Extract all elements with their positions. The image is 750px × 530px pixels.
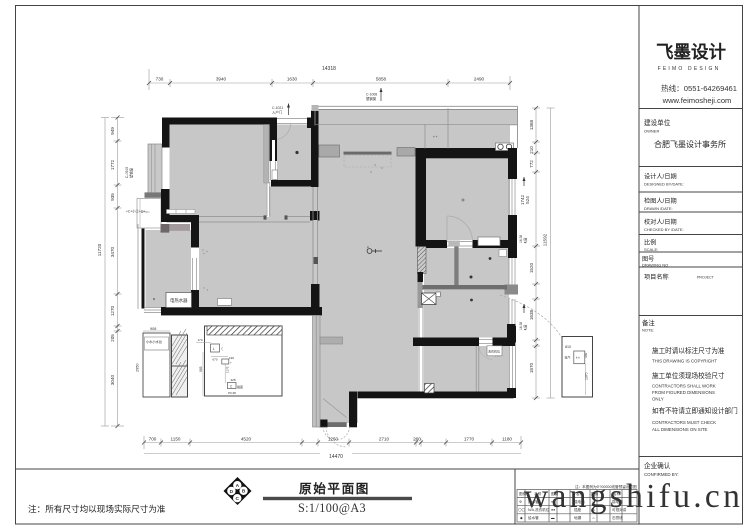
svg-text:Φ: Φ	[519, 500, 522, 504]
svg-text:注：所有尺寸均以现场实际尺寸为准: 注：所有尺寸均以现场实际尺寸为准	[28, 503, 166, 514]
svg-text:施工时请以标注尺寸为准: 施工时请以标注尺寸为准	[652, 346, 725, 355]
svg-text:730: 730	[156, 77, 164, 82]
svg-text:∧∧: ∧∧	[576, 356, 580, 360]
svg-text:OWNER: OWNER	[644, 129, 659, 134]
svg-text:入户门: 入户门	[272, 110, 283, 115]
svg-text:wangshifu.cn: wangshifu.cn	[524, 478, 743, 515]
svg-text:DRAWN /DATE:: DRAWN /DATE:	[644, 206, 673, 211]
svg-text:524: 524	[525, 196, 530, 204]
svg-text:P0.38: P0.38	[228, 391, 236, 395]
svg-text:CONTRACTORS SHALL WORK: CONTRACTORS SHALL WORK	[652, 384, 716, 389]
svg-text:热线：0551-64269461: 热线：0551-64269461	[661, 83, 737, 93]
svg-text:1370: 1370	[585, 372, 589, 380]
svg-text:CONTRACTORS MUST CHECK: CONTRACTORS MUST CHECK	[652, 420, 716, 425]
svg-text:1270: 1270	[110, 305, 115, 316]
svg-text:700: 700	[149, 437, 157, 442]
svg-text:670: 670	[213, 358, 218, 362]
svg-text:+: +	[230, 361, 232, 365]
svg-text:NOTE:: NOTE:	[642, 328, 654, 333]
svg-text:200: 200	[413, 437, 421, 442]
svg-text:C-1008: C-1008	[366, 93, 377, 97]
svg-text:DESIGNED BY/DATE:: DESIGNED BY/DATE:	[644, 182, 684, 187]
svg-text:205: 205	[110, 334, 115, 342]
svg-text:1870: 1870	[529, 362, 534, 373]
svg-text:949: 949	[110, 127, 115, 135]
svg-text:FROM FIGURED DIMENSIONS: FROM FIGURED DIMENSIONS	[652, 390, 715, 395]
svg-text:935: 935	[110, 193, 115, 201]
svg-text:S:1/100@A3: S:1/100@A3	[298, 501, 366, 515]
svg-text:+C+小②+C+: +C+小②+C+	[126, 209, 145, 214]
svg-text:原始平面图: 原始平面图	[299, 481, 370, 496]
svg-text:SCALE:: SCALE:	[644, 247, 658, 252]
svg-text:1630: 1630	[287, 77, 298, 82]
svg-text:2950: 2950	[136, 364, 140, 372]
svg-text:16.38: 16.38	[519, 235, 523, 243]
svg-text:电热水器: 电热水器	[170, 297, 188, 304]
svg-text:1180: 1180	[502, 437, 512, 442]
svg-text:450: 450	[584, 352, 588, 358]
svg-text:14318: 14318	[322, 66, 336, 72]
svg-text:1368: 1368	[529, 119, 534, 130]
svg-text:www.feimosheji.com: www.feimosheji.com	[662, 96, 732, 105]
svg-text:插座: 插座	[237, 384, 243, 389]
svg-text:210: 210	[529, 146, 534, 154]
svg-text:2710: 2710	[379, 437, 390, 442]
svg-text:1770: 1770	[464, 437, 475, 442]
svg-text:+ +: + +	[433, 135, 438, 139]
svg-text:石膏线: 石膏线	[612, 515, 623, 520]
svg-text:16.38: 16.38	[519, 322, 523, 330]
svg-text:电气: 电气	[565, 355, 571, 360]
svg-text:5858: 5858	[376, 77, 387, 82]
svg-text:11720: 11720	[97, 243, 102, 256]
svg-text:THIS DRAWING IS COPYRIGHT: THIS DRAWING IS COPYRIGHT	[652, 359, 717, 364]
svg-text:170: 170	[198, 338, 203, 342]
svg-text:PROJECT: PROJECT	[697, 276, 715, 280]
svg-text:1250: 1250	[328, 437, 339, 442]
svg-text:℄窗: ℄窗	[523, 237, 528, 244]
svg-text:4520: 4520	[241, 437, 252, 442]
svg-text:1520: 1520	[529, 262, 534, 273]
svg-text:比例: 比例	[644, 239, 656, 247]
svg-text:项目名称: 项目名称	[644, 273, 669, 281]
svg-text:985: 985	[199, 366, 203, 372]
svg-text:3470: 3470	[110, 246, 115, 257]
svg-text:2490: 2490	[474, 77, 485, 82]
svg-text:14470: 14470	[329, 454, 343, 460]
svg-text:810: 810	[565, 345, 571, 349]
svg-text:洗衣机位: 洗衣机位	[488, 349, 500, 354]
svg-text:给水管: 给水管	[528, 515, 539, 520]
svg-text:11592: 11592	[543, 233, 548, 246]
svg-text:飞墨设计: 飞墨设计	[656, 42, 726, 62]
svg-text:地漏: 地漏	[574, 515, 582, 520]
svg-text:ALL DIMENSIONS ON SITE: ALL DIMENSIONS ON SITE	[652, 427, 708, 432]
svg-text:备注: 备注	[642, 318, 655, 327]
svg-text:DRAWING NO: DRAWING NO	[642, 263, 668, 268]
svg-text:1772: 1772	[110, 159, 115, 170]
svg-text:C-1021: C-1021	[272, 106, 283, 110]
svg-text:1638: 1638	[529, 309, 534, 320]
svg-text:L: L	[213, 347, 215, 351]
svg-text:190: 190	[229, 356, 234, 360]
svg-text:▬: ▬	[551, 516, 555, 520]
svg-text:校对人/日期: 校对人/日期	[644, 218, 677, 226]
svg-text:合肥飞墨设计事务所: 合肥飞墨设计事务所	[654, 139, 726, 149]
svg-text:P: P	[367, 246, 369, 250]
svg-text:C-0915: C-0915	[125, 167, 129, 178]
svg-text:C: C	[235, 496, 239, 502]
svg-text:CONFIRMED BY:: CONFIRMED BY:	[644, 472, 679, 477]
svg-text:D: D	[230, 489, 234, 495]
svg-text:ONLY: ONLY	[652, 397, 664, 402]
svg-text:企业确认: 企业确认	[644, 461, 671, 470]
svg-text:3040: 3040	[110, 374, 115, 385]
svg-text:小水小水台: 小水小水台	[146, 339, 162, 344]
svg-text:908: 908	[150, 327, 156, 331]
svg-text:如有不符请立即通知设计部门: 如有不符请立即通知设计部门	[652, 406, 738, 415]
svg-text:B: B	[242, 489, 246, 495]
svg-text:CHECKED BY /DATE:: CHECKED BY /DATE:	[644, 227, 684, 232]
svg-text:FEIMO DESIGN: FEIMO DESIGN	[658, 66, 721, 72]
svg-text:3940: 3940	[216, 77, 227, 82]
svg-text:建设单位: 建设单位	[644, 118, 671, 127]
svg-text:1150: 1150	[171, 437, 181, 442]
svg-text:328: 328	[231, 378, 236, 382]
svg-text:772: 772	[529, 160, 534, 168]
svg-text:设计人/日期: 设计人/日期	[644, 173, 677, 181]
svg-text:施工单位须现场校验尺寸: 施工单位须现场校验尺寸	[652, 371, 725, 380]
svg-text:塑钢窗: 塑钢窗	[129, 167, 134, 178]
svg-text:℄窗: ℄窗	[523, 324, 528, 331]
svg-text:A: A	[236, 483, 240, 489]
svg-text:检图人/日期: 检图人/日期	[644, 197, 677, 205]
svg-text:1175: 1175	[226, 366, 230, 373]
svg-text:塑钢窗: 塑钢窗	[366, 96, 377, 101]
